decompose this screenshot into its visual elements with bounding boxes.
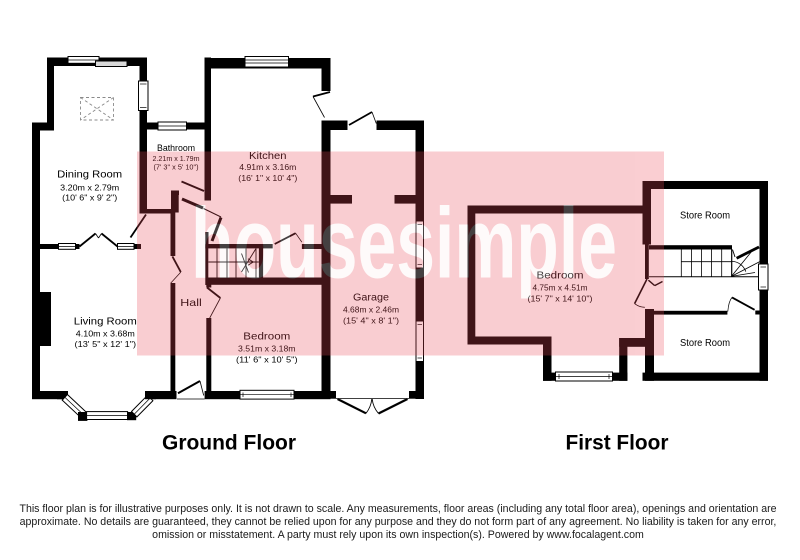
svg-text:(10' 6" x 9' 2"): (10' 6" x 9' 2") <box>62 193 117 202</box>
svg-text:Dining Room: Dining Room <box>57 169 122 180</box>
svg-text:This floor plan is for illustr: This floor plan is for illustrative purp… <box>19 503 776 515</box>
svg-text:(13' 5" x 12' 1"): (13' 5" x 12' 1") <box>75 340 137 349</box>
svg-text:3.20m x 2.79m: 3.20m x 2.79m <box>60 184 119 193</box>
svg-text:4.10m x 3.68m: 4.10m x 3.68m <box>76 329 135 338</box>
svg-text:Living Room: Living Room <box>74 316 137 327</box>
svg-text:(11' 6" x 10' 5"): (11' 6" x 10' 5") <box>236 355 298 364</box>
svg-text:Ground Floor: Ground Floor <box>162 432 296 455</box>
svg-text:approximate. No details are gu: approximate. No details are guaranteed, … <box>20 516 777 528</box>
svg-text:Store Room: Store Room <box>680 211 730 222</box>
svg-text:omission or misstatement. A pa: omission or misstatement. A party must r… <box>152 529 644 541</box>
svg-text:housesimple: housesimple <box>191 188 617 300</box>
svg-text:Store Room: Store Room <box>680 338 730 349</box>
svg-text:First Floor: First Floor <box>566 432 669 455</box>
